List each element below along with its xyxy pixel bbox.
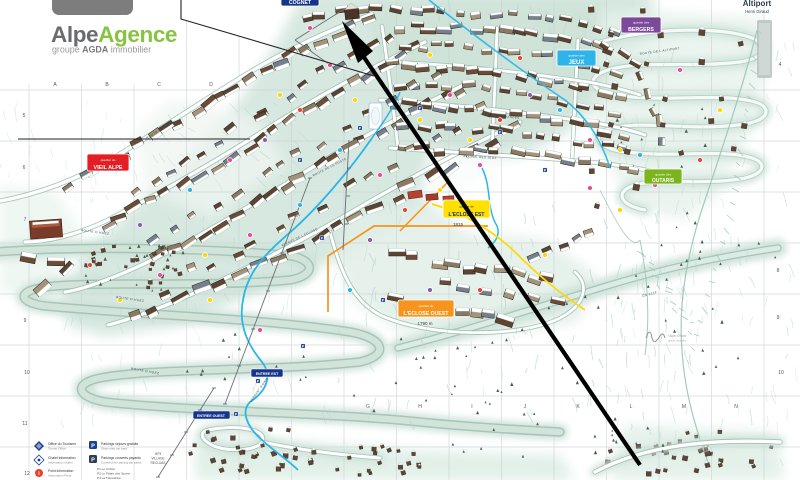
svg-text:4: 4 xyxy=(779,62,782,68)
svg-text:ENTREE EST: ENTREE EST xyxy=(256,372,279,376)
svg-text:quartier des: quartier des xyxy=(568,54,585,58)
svg-text:D: D xyxy=(209,82,213,88)
svg-text:8: 8 xyxy=(777,268,780,274)
svg-text:Information chalet: Information chalet xyxy=(48,461,73,465)
svg-text:1790 m: 1790 m xyxy=(417,321,432,326)
svg-text:groupe AGDA immobilier: groupe AGDA immobilier xyxy=(52,45,151,55)
svg-text:H: H xyxy=(418,404,422,410)
svg-text:P2 Le Palais des Sports: P2 Le Palais des Sports xyxy=(97,472,130,476)
svg-text:BERGERS: BERGERS xyxy=(628,27,654,33)
svg-text:C: C xyxy=(157,82,161,88)
svg-text:Parkings couverts payants: Parkings couverts payants xyxy=(101,456,141,460)
svg-text:RECLUAS: RECLUAS xyxy=(150,461,165,465)
svg-text:I: I xyxy=(471,404,472,410)
svg-text:M: M xyxy=(682,404,686,410)
svg-text:9: 9 xyxy=(777,315,780,321)
svg-text:1815: 1815 xyxy=(453,222,464,227)
svg-text:L: L xyxy=(630,404,633,410)
svg-text:N: N xyxy=(734,404,738,410)
svg-text:P: P xyxy=(91,458,95,464)
svg-text:P: P xyxy=(91,444,95,450)
svg-text:ENTREE OUEST: ENTREE OUEST xyxy=(197,414,226,418)
svg-text:9: 9 xyxy=(24,318,27,324)
svg-text:quartier des: quartier des xyxy=(633,21,650,25)
svg-text:P3 La Télécabine: P3 La Télécabine xyxy=(97,476,121,480)
svg-text:7: 7 xyxy=(24,217,27,223)
svg-text:L'ECLOSE EST: L'ECLOSE EST xyxy=(449,212,485,218)
svg-text:10: 10 xyxy=(24,370,30,376)
svg-text:P1 Le Cristal: P1 Le Cristal xyxy=(97,467,115,471)
svg-text:quartier de: quartier de xyxy=(419,304,434,308)
svg-text:HP3: HP3 xyxy=(155,452,161,456)
svg-text:11: 11 xyxy=(22,421,27,427)
svg-text:AlpeAgence: AlpeAgence xyxy=(51,22,177,47)
svg-text:quartier des: quartier des xyxy=(655,172,672,176)
svg-text:Chalet information: Chalet information xyxy=(48,456,76,460)
svg-text:Short-stay car park: Short-stay car park xyxy=(101,447,128,451)
svg-text:Information Point: Information Point xyxy=(48,474,72,478)
svg-text:quartier du: quartier du xyxy=(101,158,116,162)
svg-text:OUTARIS: OUTARIS xyxy=(652,178,675,184)
svg-text:10: 10 xyxy=(778,370,784,376)
svg-text:Covered fee paying car parks: Covered fee paying car parks xyxy=(101,461,142,465)
svg-text:Tourist Office: Tourist Office xyxy=(48,447,66,451)
svg-text:G: G xyxy=(366,404,370,410)
svg-text:VIEIL ALPE: VIEIL ALPE xyxy=(93,165,122,171)
svg-text:VILLAGE: VILLAGE xyxy=(151,457,164,461)
svg-text:COGNET: COGNET xyxy=(289,0,312,6)
svg-text:5: 5 xyxy=(23,113,26,119)
svg-text:12: 12 xyxy=(24,471,30,477)
svg-text:Parkings séjours gratuits: Parkings séjours gratuits xyxy=(101,442,138,446)
svg-text:Office du Tourisme: Office du Tourisme xyxy=(48,442,76,446)
svg-text:Henri Giraud: Henri Giraud xyxy=(745,9,769,14)
svg-text:Point information: Point information xyxy=(48,469,74,473)
svg-text:6: 6 xyxy=(23,165,26,171)
svg-text:grand domaine: grand domaine xyxy=(668,339,687,343)
svg-text:JEUX: JEUX xyxy=(569,60,585,66)
svg-text:Altiport: Altiport xyxy=(743,0,772,8)
svg-text:l'Alpe d'Huez: l'Alpe d'Huez xyxy=(668,334,687,338)
svg-text:L'ECLOSE OUEST: L'ECLOSE OUEST xyxy=(403,311,449,317)
